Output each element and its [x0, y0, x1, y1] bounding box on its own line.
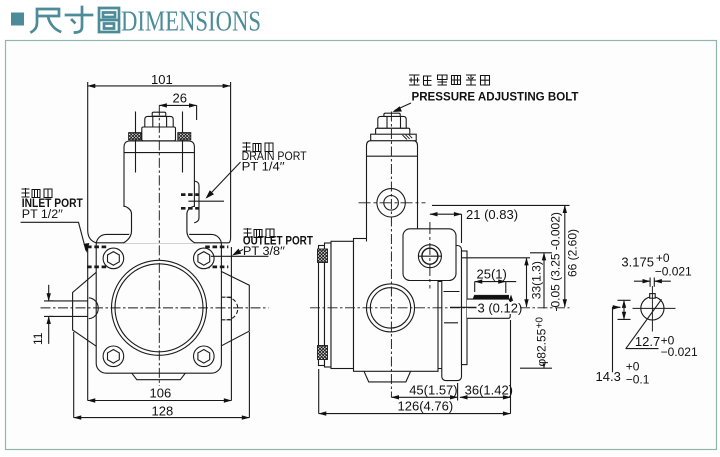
svg-text:PT 3/8′′: PT 3/8′′	[243, 246, 285, 258]
svg-text:−0.021: −0.021	[655, 265, 692, 279]
svg-text:−0.1: −0.1	[626, 373, 650, 387]
svg-text:45(1.57): 45(1.57)	[409, 383, 457, 398]
svg-text:+0: +0	[626, 360, 640, 374]
svg-text:φ82.55: φ82.55	[535, 328, 549, 366]
svg-text:−0.021: −0.021	[661, 345, 698, 359]
svg-text:21 (0.83): 21 (0.83)	[466, 207, 518, 222]
svg-text:DIMENSIONS: DIMENSIONS	[121, 6, 261, 38]
svg-text:-0.05 (3.25 -0.002): -0.05 (3.25 -0.002)	[549, 212, 563, 311]
svg-text:33(1.3): 33(1.3)	[530, 261, 544, 299]
svg-text:36(1.42): 36(1.42)	[465, 383, 513, 398]
svg-text:106: 106	[150, 386, 172, 401]
svg-text:128: 128	[152, 404, 174, 419]
svg-text:12.7: 12.7	[635, 334, 660, 349]
svg-text:3 (0.12): 3 (0.12)	[478, 301, 523, 316]
svg-text:26: 26	[173, 91, 187, 106]
svg-text:+0: +0	[535, 317, 546, 329]
svg-text:PT 1/2′′: PT 1/2′′	[22, 209, 63, 221]
svg-text:66 (2.60): 66 (2.60)	[566, 229, 580, 277]
svg-text:+0: +0	[656, 251, 670, 265]
svg-text:11: 11	[31, 332, 45, 345]
svg-text:101: 101	[151, 72, 173, 87]
svg-text:126(4.76): 126(4.76)	[398, 399, 454, 414]
svg-text:PT 1/4′′: PT 1/4′′	[242, 162, 285, 174]
svg-text:25(1): 25(1)	[477, 267, 507, 282]
svg-text:3.175: 3.175	[621, 255, 654, 270]
svg-text:PRESSURE ADJUSTING BOLT: PRESSURE ADJUSTING BOLT	[412, 92, 579, 104]
svg-text:14.3: 14.3	[596, 369, 621, 384]
